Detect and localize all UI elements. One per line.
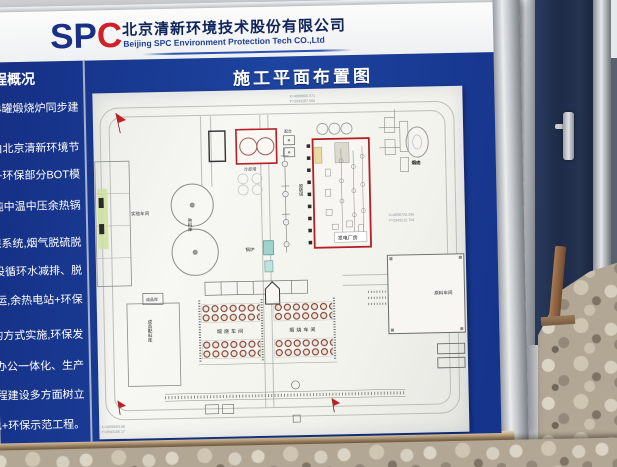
ghost-cells: [238, 173, 263, 195]
product-batching-silo: 成品库 成品配料库: [127, 293, 181, 387]
site-plan-paper: 实验车间 成品库 成品配料库 冷却塔: [92, 86, 469, 440]
batching-silo-label: 成品配料库: [147, 319, 153, 344]
spc-logo: SPC: [50, 16, 123, 57]
overview-line: C+环保部分BOT模: [0, 166, 80, 184]
logo-underline: [142, 49, 352, 55]
project-overview-panel: 程概况 64罐煅烧炉同步建 由北京清新环境节 C+环保部分BOT模 吨中温中压余…: [0, 61, 91, 444]
power-plant-building: 发电厂房 脱硫塔: [297, 138, 371, 248]
coord-bottom-x: X=4000603.08: [101, 425, 125, 429]
plan-title: 施工平面布置图: [233, 62, 373, 90]
chimney-label: 烟囱: [411, 159, 421, 166]
fgd-cells: [307, 144, 313, 244]
overview-line: 生产办公一体化、生产: [0, 357, 84, 375]
north-arrow-icon: [116, 113, 126, 133]
tank-circles: [317, 123, 352, 135]
overview-line: 设的方式实施,环保发: [0, 326, 84, 344]
product-silo-label: 成品库: [146, 296, 158, 302]
fgd-tower-label: 脱硫塔: [298, 182, 304, 198]
overview-line: 步建设循环水减排、脱: [0, 262, 82, 280]
calcining-left-label: 煅烧车间: [217, 328, 245, 336]
overview-line: 电+环保示范工程。: [0, 416, 85, 434]
power-plant-label: 发电厂房: [338, 234, 358, 241]
hrsg-units: [378, 109, 408, 172]
calcining-workshop-right: 煅烧车间: [274, 302, 333, 358]
block-baseline: [199, 362, 338, 365]
coord-top-y: Y=2943287.566: [290, 99, 316, 104]
lab-workshop-label: 实验车间: [131, 210, 150, 217]
raw-material-workshop: 原料车间: [387, 254, 465, 334]
overview-line: 保系统,烟气脱硫脱: [0, 234, 82, 252]
storage-sheds: [437, 343, 465, 368]
door-handle: [563, 112, 574, 160]
aux-label: 配合: [284, 129, 292, 134]
calcining-right-label: 煅烧车间: [289, 326, 317, 334]
calcining-workshop-left: 煅烧车间: [201, 303, 260, 359]
cooling-tower: 冷却塔: [236, 129, 278, 195]
cooling-tower-label: 冷却塔: [244, 166, 258, 173]
overview-line: 64罐煅烧炉同步建: [0, 99, 79, 117]
overview-heading: 程概况: [0, 69, 35, 90]
green-strip: [97, 189, 108, 250]
board-body: 程概况 64罐煅烧炉同步建 由北京清新环境节 C+环保部分BOT模 吨中温中压余…: [0, 52, 502, 443]
chimney: 烟囱: [406, 127, 429, 167]
coord-right-x: X=4000726.296: [388, 213, 414, 218]
flag-icon: [332, 398, 340, 412]
site-plan: 实验车间 成品库 成品配料库 冷却塔: [92, 86, 469, 440]
flag-icon: [118, 401, 126, 415]
pipe-valves: [281, 148, 291, 253]
construction-site-photo: SPC 北京清新环境技术股份有限公司 Beijing SPC Environme…: [0, 0, 617, 467]
clinker-silos: [171, 183, 219, 275]
overview-line: 投运,余热电站+环保: [0, 291, 83, 309]
sign-board: SPC 北京清新环境技术股份有限公司 Beijing SPC Environme…: [0, 0, 529, 443]
boiler: 锅炉: [245, 241, 274, 273]
coord-bottom-y: Y=2943105.17: [101, 430, 125, 434]
overview-line: 吨中温中压余热锅: [0, 197, 81, 215]
coord-top-x: X=4000800.971: [289, 94, 315, 99]
clinker-silo-label: 熟料库: [187, 217, 193, 233]
overview-line: 由北京清新环境节: [0, 139, 80, 157]
coord-right-y: Y=2943212.754: [389, 218, 415, 223]
boiler-label: 锅炉: [245, 246, 255, 253]
overview-line: 程、工程建设多方面树立: [0, 386, 85, 405]
feed-bridge: [205, 280, 308, 305]
